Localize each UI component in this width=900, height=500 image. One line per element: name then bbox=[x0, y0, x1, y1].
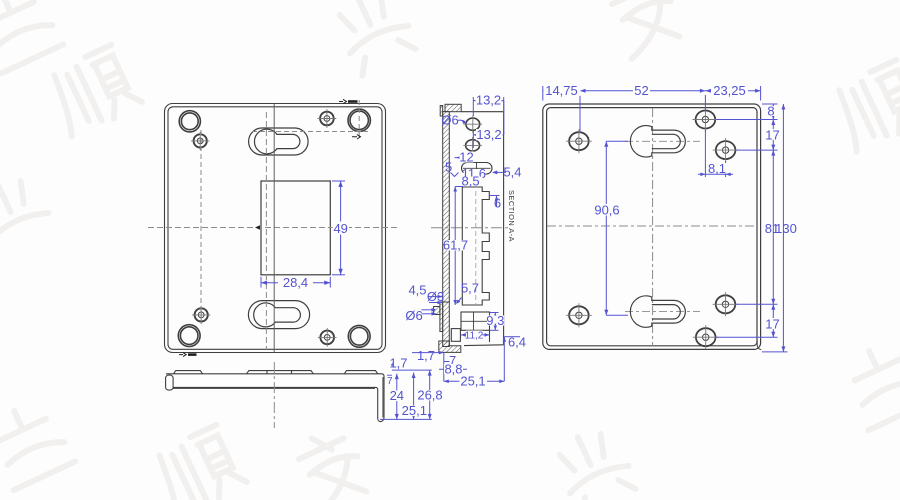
svg-text:5,4: 5,4 bbox=[503, 164, 521, 179]
svg-text:49: 49 bbox=[333, 221, 347, 236]
svg-text:23,25: 23,25 bbox=[713, 83, 746, 98]
svg-text:26,8: 26,8 bbox=[417, 388, 442, 403]
svg-text:17: 17 bbox=[765, 316, 779, 331]
svg-text:7: 7 bbox=[387, 376, 393, 387]
svg-text:Ø6: Ø6 bbox=[441, 112, 458, 127]
svg-text:4,5: 4,5 bbox=[408, 282, 426, 297]
svg-text:130: 130 bbox=[775, 221, 797, 236]
svg-text:25,1: 25,1 bbox=[402, 403, 427, 418]
svg-text:8: 8 bbox=[767, 104, 774, 119]
svg-text:6: 6 bbox=[494, 196, 501, 211]
svg-text:8,5: 8,5 bbox=[462, 173, 480, 188]
svg-text:61,7: 61,7 bbox=[443, 238, 468, 253]
svg-text:5: 5 bbox=[445, 159, 452, 174]
svg-text:52: 52 bbox=[634, 83, 648, 98]
svg-text:9,3: 9,3 bbox=[486, 313, 504, 328]
svg-text:1,7: 1,7 bbox=[389, 356, 407, 371]
svg-text:14,75: 14,75 bbox=[545, 83, 578, 98]
svg-text:1,7: 1,7 bbox=[417, 348, 435, 363]
svg-text:5,7: 5,7 bbox=[461, 280, 479, 295]
svg-text:25,1: 25,1 bbox=[460, 373, 485, 388]
svg-text:13,2: 13,2 bbox=[476, 127, 501, 142]
svg-text:24: 24 bbox=[390, 388, 404, 403]
svg-text:Ø6: Ø6 bbox=[405, 308, 422, 323]
svg-text:8,1: 8,1 bbox=[708, 161, 726, 176]
svg-text:11,2: 11,2 bbox=[465, 330, 484, 341]
svg-text:90,6: 90,6 bbox=[594, 202, 619, 217]
svg-text:28,4: 28,4 bbox=[283, 275, 308, 290]
svg-text:SECTION A-A: SECTION A-A bbox=[507, 190, 516, 242]
svg-text:17: 17 bbox=[765, 127, 779, 142]
svg-text:13,2: 13,2 bbox=[476, 93, 501, 108]
svg-text:6,4: 6,4 bbox=[508, 334, 526, 349]
svg-text:12: 12 bbox=[459, 149, 473, 164]
